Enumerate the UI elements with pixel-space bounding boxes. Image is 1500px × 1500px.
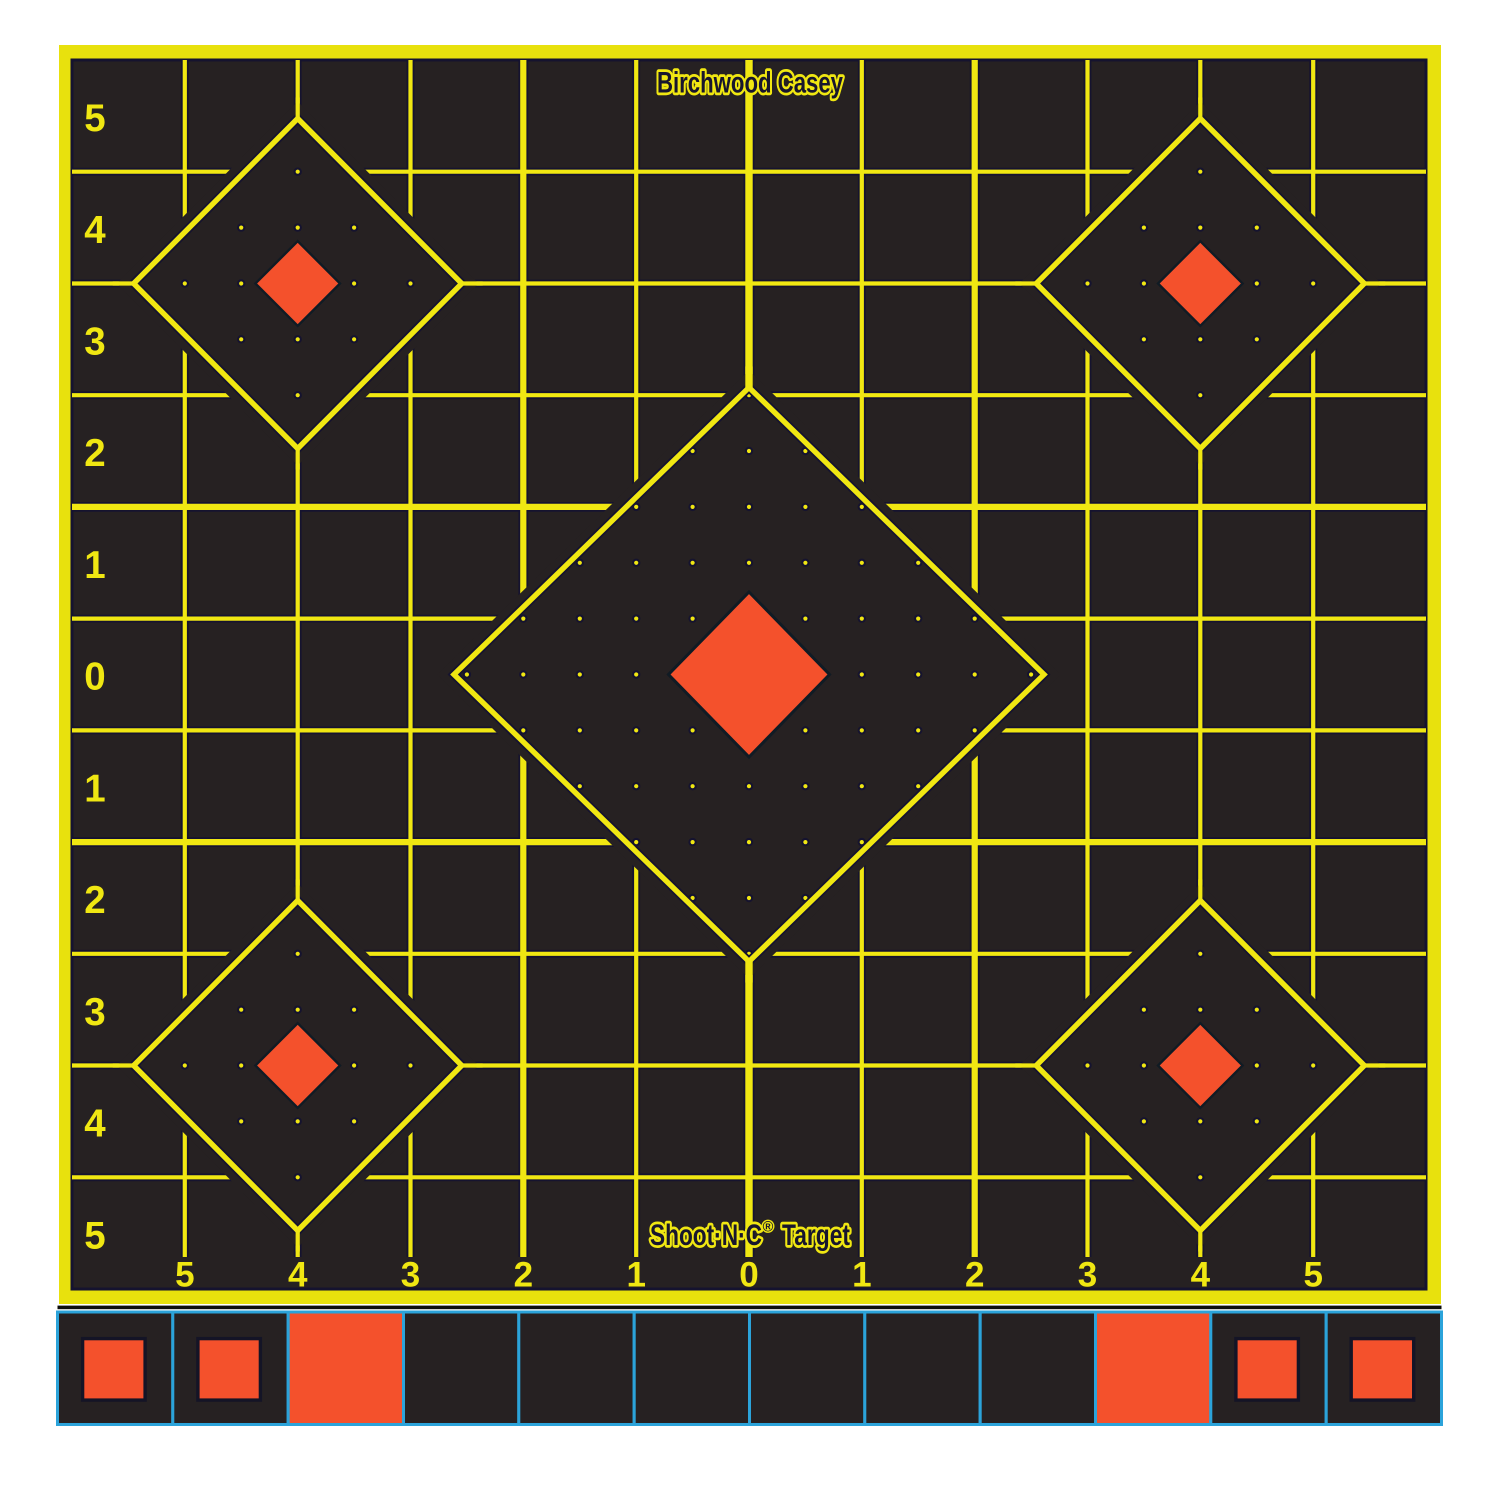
- svg-text:0: 0: [739, 1256, 758, 1295]
- svg-text:1: 1: [84, 544, 105, 587]
- svg-text:4: 4: [1191, 1256, 1211, 1295]
- svg-text:4: 4: [84, 1103, 106, 1146]
- svg-text:1: 1: [626, 1256, 645, 1295]
- svg-text:4: 4: [288, 1256, 308, 1295]
- svg-text:5: 5: [84, 97, 105, 140]
- svg-text:Shoot·N·C: Shoot·N·C: [650, 1219, 762, 1252]
- svg-text:0: 0: [84, 656, 105, 699]
- svg-text:1: 1: [84, 767, 105, 810]
- svg-text:1: 1: [852, 1256, 871, 1295]
- svg-text:2: 2: [84, 432, 105, 475]
- svg-text:4: 4: [84, 209, 106, 252]
- svg-text:3: 3: [84, 991, 105, 1034]
- svg-text:3: 3: [401, 1256, 420, 1295]
- svg-text:Birchwood Casey: Birchwood Casey: [657, 67, 843, 100]
- svg-text:3: 3: [84, 321, 105, 364]
- svg-text:®: ®: [763, 1220, 774, 1236]
- svg-text:2: 2: [514, 1256, 533, 1295]
- svg-text:2: 2: [965, 1256, 984, 1295]
- svg-text:2: 2: [84, 879, 105, 922]
- svg-text:5: 5: [1303, 1256, 1322, 1295]
- svg-text:5: 5: [84, 1214, 105, 1257]
- svg-text:3: 3: [1078, 1256, 1097, 1295]
- svg-text:Target: Target: [782, 1219, 850, 1252]
- svg-text:5: 5: [175, 1256, 194, 1295]
